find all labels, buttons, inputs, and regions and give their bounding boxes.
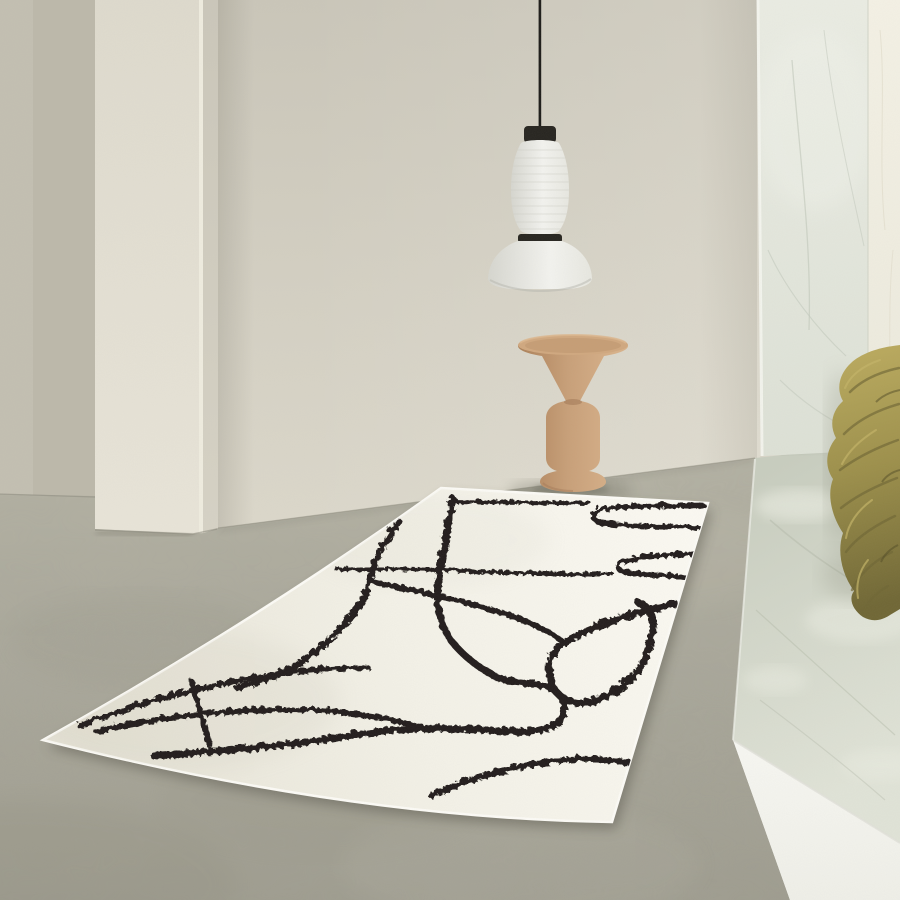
table-foot — [540, 471, 606, 492]
lamp-cord — [539, 0, 542, 129]
marble-patch — [755, 30, 875, 210]
alcove-wall-inner — [33, 0, 95, 497]
alcove-wall-outer — [0, 0, 33, 496]
table-neck-shadow — [564, 399, 582, 405]
lamp-lantern-body — [511, 140, 569, 235]
marble-patch — [743, 666, 807, 694]
table-top-inner — [525, 338, 621, 353]
partition-wall-front — [95, 0, 200, 533]
partition-wall-edge — [199, 0, 203, 533]
wall-corner-shade — [700, 0, 757, 470]
partition-wall-side — [203, 0, 218, 533]
scene-canvas — [0, 0, 900, 900]
rug-pattern-line — [447, 500, 588, 502]
table-stem — [546, 401, 600, 471]
partition-cast-shade — [218, 0, 254, 528]
interior-photo — [0, 0, 900, 900]
